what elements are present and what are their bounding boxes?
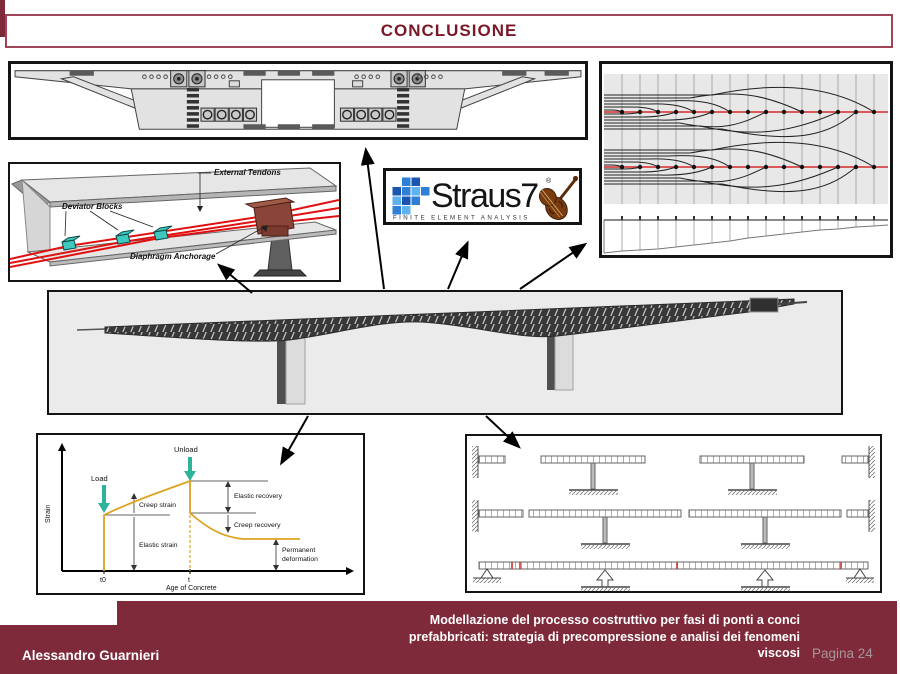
- tick-t0: t0: [100, 577, 106, 584]
- arrow-to-straus7: [448, 244, 467, 289]
- strain-graph-figure: Load Unload Creep strain Elastic strain …: [36, 433, 365, 595]
- strain-graph-drawing: Load Unload Creep strain Elastic strain …: [38, 435, 363, 593]
- tick-t: t: [188, 577, 190, 584]
- tendon-3d-figure: External Tendons Deviator Blocks Diaphra…: [8, 162, 341, 282]
- external-tendons-label: External Tendons: [214, 168, 281, 177]
- tendon-3d-drawing: External Tendons Deviator Blocks Diaphra…: [10, 164, 339, 280]
- slide-title: CONCLUSIONE: [381, 21, 518, 41]
- cross-section-figure: [8, 61, 588, 140]
- bridge-model-drawing: [49, 292, 841, 413]
- creep-recovery-label: Creep recovery: [234, 522, 281, 529]
- footer-caption-line-3: viscosi: [240, 645, 800, 662]
- title-box: CONCLUSIONE: [5, 14, 893, 48]
- page-number: Pagina 24: [812, 646, 873, 661]
- straus7-wordmark: Straus7: [431, 177, 538, 215]
- deviator-blocks-label: Deviator Blocks: [62, 202, 123, 211]
- y-axis-label: Strain: [45, 505, 52, 523]
- presentation-slide: CONCLUSIONE: [0, 0, 900, 674]
- cross-section-drawing: [11, 64, 585, 137]
- straus7-tagline: FINITE ELEMENT ANALYSIS: [393, 215, 530, 222]
- construction-stages-figure: [465, 434, 882, 593]
- permanent-deformation-label-2: deformation: [282, 556, 318, 563]
- load-label: Load: [91, 474, 108, 483]
- author-name: Alessandro Guarnieri: [22, 648, 159, 663]
- creep-strain-label: Creep strain: [139, 502, 176, 509]
- footer-caption-line-2: prefabbricati: strategia di precompressi…: [240, 629, 800, 646]
- straus7-logo: Straus7 ® FINITE ELEMENT ANALYSIS: [383, 168, 582, 225]
- arrow-to-tendon-profiles: [520, 245, 584, 289]
- bridge-model-figure: [47, 290, 843, 415]
- footer-caption: Modellazione del processo costruttivo pe…: [240, 612, 800, 662]
- elastic-strain-label: Elastic strain: [139, 542, 178, 549]
- arrow-to-cross-section: [366, 151, 384, 289]
- registered-mark: ®: [546, 177, 552, 185]
- construction-stages-drawing: [467, 436, 880, 591]
- unload-label: Unload: [174, 445, 198, 454]
- straus7-logo-drawing: Straus7 ® FINITE ELEMENT ANALYSIS: [386, 171, 579, 222]
- diaphragm-anchorage-label: Diaphragm Anchorage: [130, 252, 216, 261]
- footer-caption-line-1: Modellazione del processo costruttivo pe…: [240, 612, 800, 629]
- x-axis-label: Age of Concrete: [166, 585, 217, 592]
- elastic-recovery-label: Elastic recovery: [234, 493, 283, 500]
- violin-icon: [534, 176, 578, 222]
- tendon-profiles-figure: [599, 61, 893, 258]
- permanent-deformation-label-1: Permanent: [282, 547, 315, 554]
- tendon-profiles-drawing: [602, 64, 890, 255]
